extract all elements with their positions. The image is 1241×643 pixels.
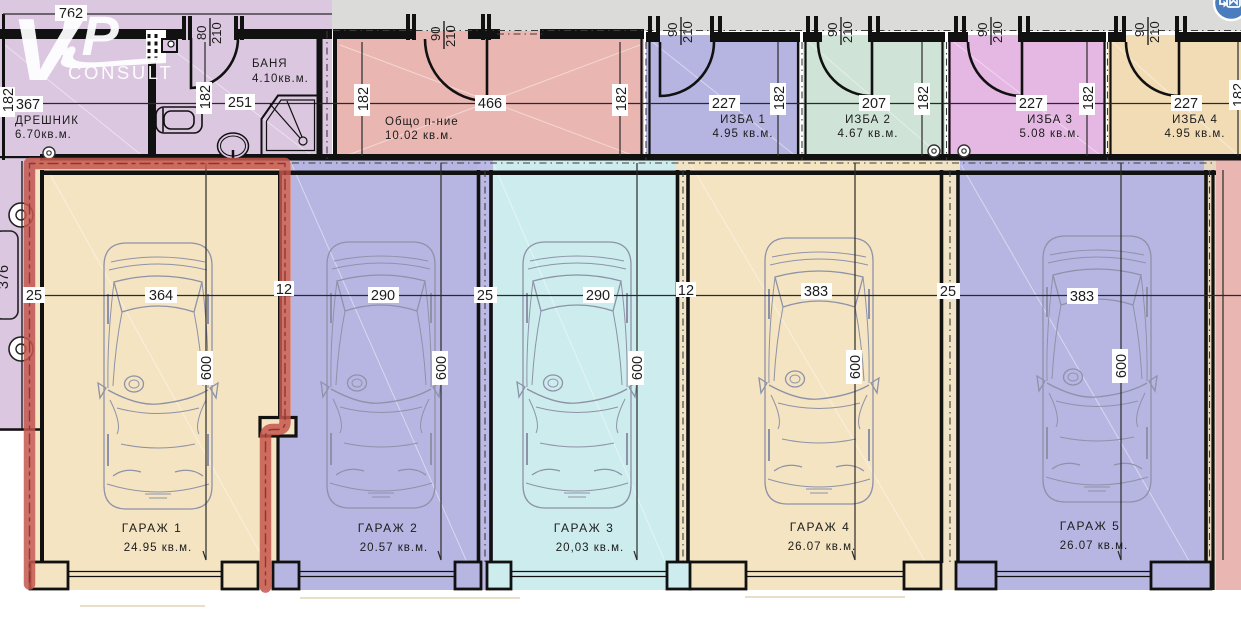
svg-text:Общо п-ние: Общо п-ние bbox=[385, 116, 459, 128]
svg-text:182: 182 bbox=[1081, 86, 1097, 110]
svg-text:6.70кв.м.: 6.70кв.м. bbox=[15, 129, 72, 141]
svg-text:90: 90 bbox=[825, 23, 840, 37]
svg-text:24.95 кв.м.: 24.95 кв.м. bbox=[124, 542, 192, 554]
svg-text:210: 210 bbox=[1147, 21, 1162, 43]
svg-text:600: 600 bbox=[848, 355, 864, 379]
svg-text:25: 25 bbox=[26, 288, 42, 304]
svg-text:CONSULT: CONSULT bbox=[68, 62, 173, 83]
svg-text:290: 290 bbox=[586, 288, 610, 304]
svg-text:207: 207 bbox=[862, 96, 886, 112]
svg-text:210: 210 bbox=[990, 21, 1005, 43]
svg-text:ИЗБА 2: ИЗБА 2 bbox=[845, 114, 891, 126]
svg-text:210: 210 bbox=[443, 25, 458, 47]
svg-text:20.57 кв.м.: 20.57 кв.м. bbox=[360, 542, 428, 554]
svg-text:227: 227 bbox=[1174, 96, 1198, 112]
svg-text:ГАРАЖ 2: ГАРАЖ 2 bbox=[358, 521, 419, 535]
svg-text:290: 290 bbox=[371, 288, 395, 304]
svg-text:210: 210 bbox=[209, 22, 224, 44]
svg-text:600: 600 bbox=[199, 356, 215, 380]
svg-text:90: 90 bbox=[1132, 23, 1147, 37]
svg-text:20,03 кв.м.: 20,03 кв.м. bbox=[556, 542, 624, 554]
svg-text:ГАРАЖ 5: ГАРАЖ 5 bbox=[1060, 519, 1121, 533]
svg-text:26.07 кв.м.: 26.07 кв.м. bbox=[788, 541, 856, 553]
svg-text:466: 466 bbox=[478, 96, 502, 112]
svg-text:ГАРАЖ 1: ГАРАЖ 1 bbox=[122, 521, 183, 535]
svg-text:4.95 кв.м.: 4.95 кв.м. bbox=[712, 128, 773, 140]
svg-text:364: 364 bbox=[149, 288, 173, 304]
svg-text:ДРЕШНИК: ДРЕШНИК bbox=[15, 115, 79, 127]
svg-text:ИЗБА 3: ИЗБА 3 bbox=[1027, 114, 1073, 126]
svg-text:600: 600 bbox=[630, 356, 646, 380]
svg-text:383: 383 bbox=[804, 284, 828, 300]
svg-text:ИЗБА 1: ИЗБА 1 bbox=[720, 114, 766, 126]
svg-text:367: 367 bbox=[16, 97, 40, 113]
svg-text:251: 251 bbox=[228, 95, 252, 111]
svg-text:4.95 кв.м.: 4.95 кв.м. bbox=[1164, 128, 1225, 140]
svg-text:182: 182 bbox=[614, 87, 630, 111]
svg-text:182: 182 bbox=[356, 87, 372, 111]
svg-text:227: 227 bbox=[1019, 96, 1043, 112]
svg-text:5.08 кв.м.: 5.08 кв.м. bbox=[1019, 128, 1080, 140]
svg-text:383: 383 bbox=[1070, 289, 1094, 305]
svg-text:182: 182 bbox=[772, 86, 788, 110]
svg-text:25: 25 bbox=[477, 288, 493, 304]
svg-text:600: 600 bbox=[1114, 354, 1130, 378]
svg-text:182: 182 bbox=[916, 86, 932, 110]
svg-text:25: 25 bbox=[940, 284, 956, 300]
svg-text:12: 12 bbox=[678, 283, 694, 299]
svg-text:ГАРАЖ 4: ГАРАЖ 4 bbox=[790, 520, 851, 534]
svg-text:80: 80 bbox=[194, 26, 209, 40]
svg-text:90: 90 bbox=[975, 23, 990, 37]
svg-text:227: 227 bbox=[712, 96, 736, 112]
svg-text:10.02 кв.м.: 10.02 кв.м. bbox=[385, 130, 453, 142]
svg-text:90: 90 bbox=[428, 27, 443, 41]
svg-text:182: 182 bbox=[1231, 83, 1241, 107]
svg-text:210: 210 bbox=[840, 21, 855, 43]
svg-text:600: 600 bbox=[434, 356, 450, 380]
svg-text:26.07 кв.м.: 26.07 кв.м. bbox=[1060, 540, 1128, 552]
svg-text:182: 182 bbox=[198, 85, 214, 109]
svg-text:ГАРАЖ 3: ГАРАЖ 3 bbox=[554, 521, 615, 535]
svg-text:90: 90 bbox=[665, 23, 680, 37]
svg-text:4.10кв.м.: 4.10кв.м. bbox=[252, 73, 309, 85]
svg-text:210: 210 bbox=[680, 21, 695, 43]
svg-text:БАНЯ: БАНЯ bbox=[252, 58, 288, 70]
svg-text:ИЗБА 4: ИЗБА 4 bbox=[1172, 114, 1218, 126]
svg-text:376: 376 bbox=[0, 265, 12, 289]
svg-text:4.67 кв.м.: 4.67 кв.м. bbox=[837, 128, 898, 140]
svg-text:12: 12 bbox=[276, 282, 292, 298]
